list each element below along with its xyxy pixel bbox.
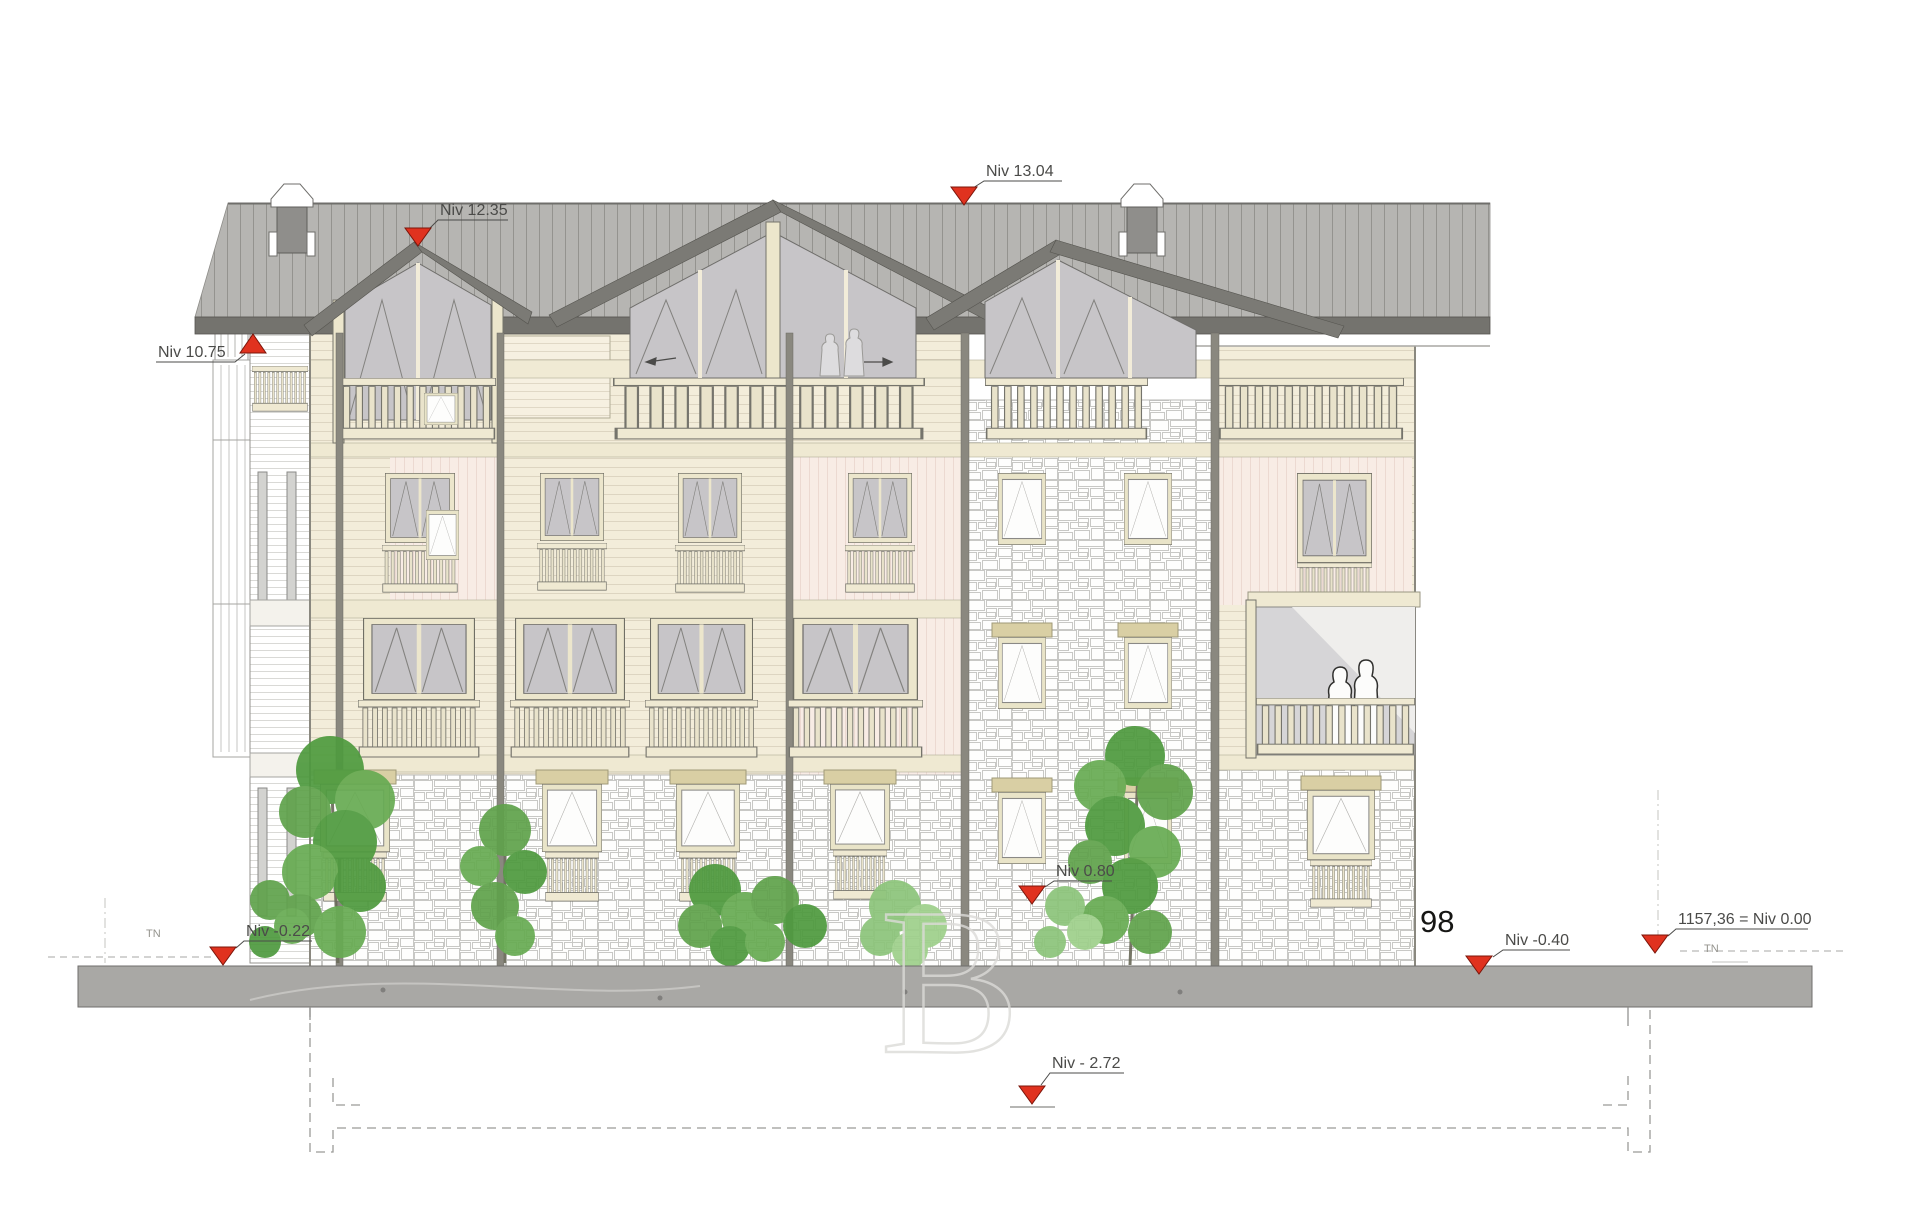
level-label-gable-peak: Niv 12.35 bbox=[440, 202, 508, 219]
window bbox=[678, 473, 742, 543]
terrain-label-left: TN bbox=[146, 928, 161, 940]
level-label-datum: 1157,36 = Niv 0.00 bbox=[1678, 911, 1812, 928]
loggia bbox=[1246, 592, 1420, 758]
terrain-label-right: TN bbox=[1704, 943, 1719, 955]
level-label-basement: Niv - 2.72 bbox=[1052, 1055, 1121, 1072]
elevation-drawing: B Niv 13.04 Niv 12.35 Niv 10.75 Niv 0.80… bbox=[0, 0, 1920, 1223]
elevation-sheet: B Niv 13.04 Niv 12.35 Niv 10.75 Niv 0.80… bbox=[0, 0, 1920, 1223]
watermark-letter: B bbox=[880, 866, 1020, 1098]
building-elevation bbox=[195, 184, 1490, 968]
level-marker-datum: 1157,36 = Niv 0.00 bbox=[1642, 911, 1812, 953]
small-window bbox=[424, 393, 458, 425]
level-label-eave: Niv 10.75 bbox=[158, 344, 226, 361]
window bbox=[1124, 473, 1172, 545]
parcel-number: 98 bbox=[1420, 904, 1454, 939]
window bbox=[848, 473, 912, 543]
glazed-door bbox=[515, 618, 625, 700]
level-label-terrain-left: Niv -0.22 bbox=[246, 923, 310, 940]
window bbox=[540, 473, 604, 541]
glazed-door bbox=[650, 618, 753, 700]
window bbox=[1297, 473, 1372, 563]
level-label-rear-ground: Niv 0.80 bbox=[1056, 863, 1115, 880]
floor-band bbox=[310, 443, 1415, 457]
level-label-terrain-right: Niv -0.40 bbox=[1505, 932, 1569, 949]
level-label-ridge: Niv 13.04 bbox=[986, 163, 1054, 180]
window bbox=[542, 784, 602, 852]
floor-band bbox=[310, 600, 965, 618]
glazed-door bbox=[793, 618, 918, 700]
floor-band bbox=[310, 755, 965, 772]
level-marker-ridge: Niv 13.04 bbox=[951, 163, 1062, 205]
small-window bbox=[426, 510, 459, 560]
window bbox=[998, 792, 1046, 864]
level-marker-basement: Niv - 2.72 bbox=[1010, 1055, 1124, 1107]
window bbox=[1124, 637, 1172, 709]
window bbox=[676, 784, 740, 852]
window bbox=[998, 473, 1046, 545]
window bbox=[1307, 790, 1375, 860]
glazed-door bbox=[363, 618, 475, 700]
tower-floor-band bbox=[250, 600, 310, 626]
floor-band bbox=[1215, 755, 1415, 770]
window bbox=[830, 784, 890, 850]
window bbox=[998, 637, 1046, 709]
stair-annex bbox=[213, 315, 250, 757]
